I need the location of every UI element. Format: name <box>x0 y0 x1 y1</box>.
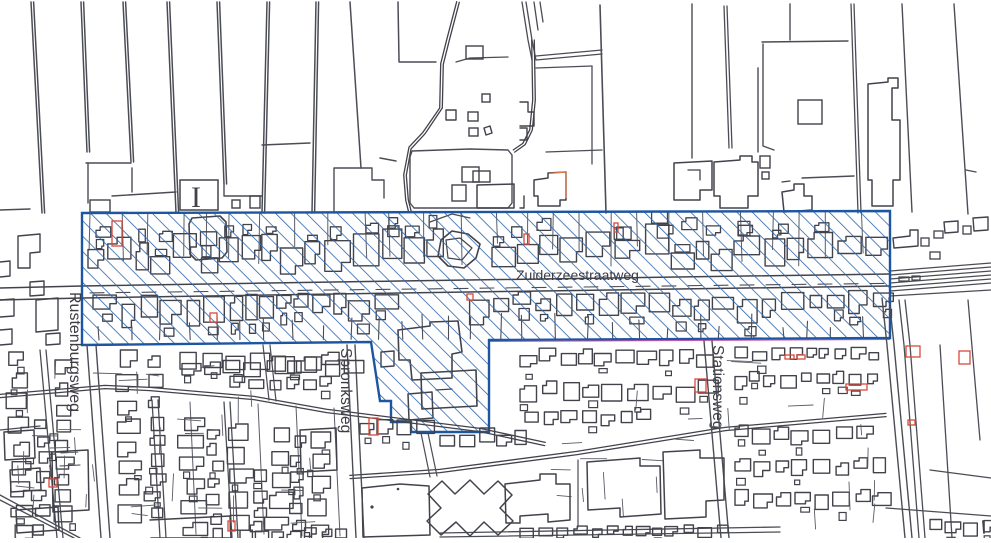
svg-text:I: I <box>191 181 201 214</box>
svg-text:Zuiderzeestraatweg: Zuiderzeestraatweg <box>516 267 639 283</box>
svg-text:Rustenburgsweg: Rustenburgsweg <box>66 292 83 412</box>
